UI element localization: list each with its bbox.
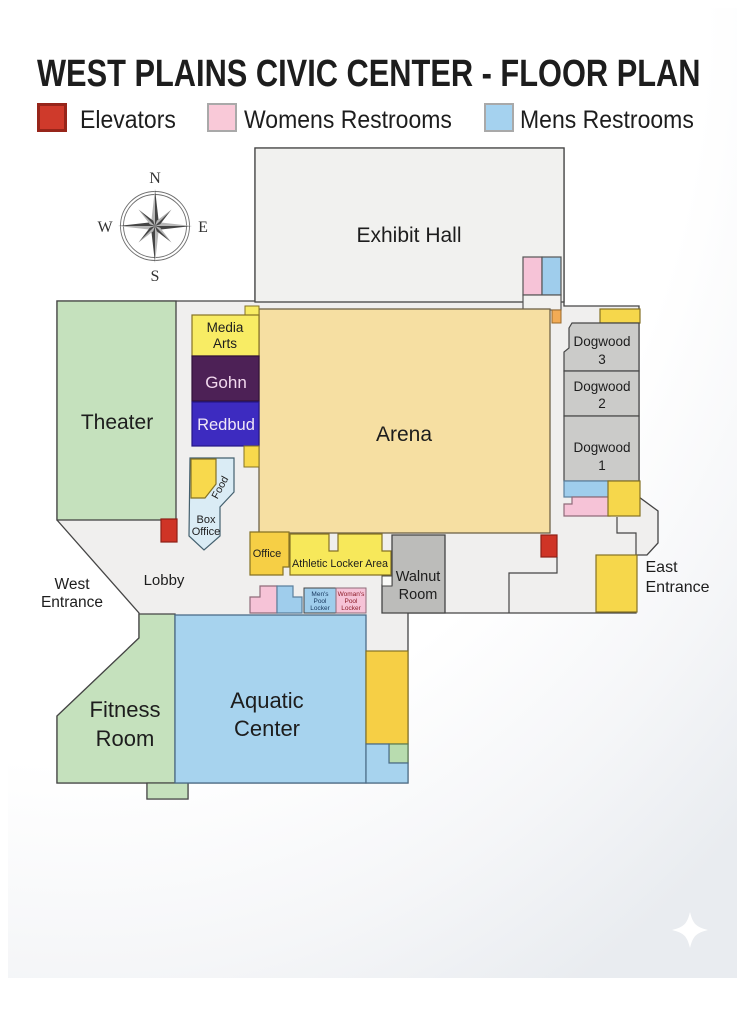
- svg-text:2: 2: [598, 396, 606, 411]
- svg-text:1: 1: [598, 458, 606, 473]
- svg-text:Fitness: Fitness: [90, 697, 161, 722]
- svg-text:Pool: Pool: [344, 598, 358, 605]
- svg-text:Media: Media: [207, 320, 244, 335]
- svg-text:Redbud: Redbud: [197, 416, 255, 434]
- svg-text:East: East: [646, 559, 679, 576]
- svg-text:Locker: Locker: [341, 605, 361, 612]
- svg-text:3: 3: [598, 352, 606, 367]
- svg-text:Office: Office: [253, 548, 282, 560]
- svg-text:Entrance: Entrance: [646, 579, 710, 596]
- svg-text:Entrance: Entrance: [41, 594, 103, 611]
- svg-text:W: W: [97, 219, 113, 236]
- svg-text:E: E: [198, 219, 208, 236]
- svg-text:Locker: Locker: [310, 605, 330, 612]
- svg-text:West: West: [54, 576, 90, 593]
- svg-text:Arena: Arena: [376, 423, 432, 446]
- svg-text:Dogwood: Dogwood: [573, 334, 630, 349]
- svg-text:N: N: [149, 170, 161, 187]
- svg-text:Room: Room: [96, 726, 155, 751]
- svg-text:Dogwood: Dogwood: [573, 440, 630, 455]
- svg-text:Center: Center: [234, 716, 300, 741]
- svg-text:Theater: Theater: [81, 411, 153, 434]
- svg-text:S: S: [151, 268, 160, 285]
- svg-text:Room: Room: [399, 587, 438, 603]
- svg-text:Exhibit Hall: Exhibit Hall: [356, 224, 461, 247]
- svg-text:Gohn: Gohn: [205, 373, 247, 392]
- svg-text:Woman's: Woman's: [338, 591, 366, 598]
- svg-text:Pool: Pool: [313, 598, 327, 605]
- svg-text:Men's: Men's: [311, 591, 329, 598]
- svg-text:Office: Office: [192, 526, 221, 538]
- svg-text:Dogwood: Dogwood: [573, 379, 630, 394]
- svg-text:Arts: Arts: [213, 336, 237, 351]
- svg-text:Athletic Locker Area: Athletic Locker Area: [292, 558, 389, 570]
- svg-text:Walnut: Walnut: [396, 569, 441, 585]
- svg-text:Lobby: Lobby: [144, 572, 185, 589]
- svg-text:Box: Box: [197, 514, 216, 526]
- svg-text:Aquatic: Aquatic: [230, 688, 303, 713]
